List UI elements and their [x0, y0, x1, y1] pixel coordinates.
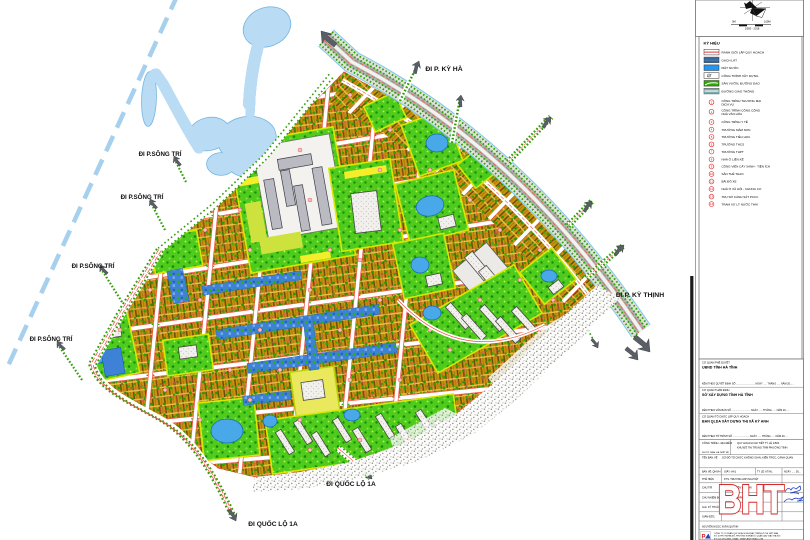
svg-text:TRƯỜNG THPT: TRƯỜNG THPT — [722, 149, 744, 154]
svg-text:CÔNG TRÌNH Y TẾ: CÔNG TRÌNH Y TẾ — [722, 119, 748, 124]
svg-text:KÈM THEO QUYẾT ĐỊNH SỐ .......: KÈM THEO QUYẾT ĐỊNH SỐ .................… — [702, 383, 794, 386]
svg-text:GIẤY: HA1: GIẤY: HA1 — [724, 470, 737, 473]
svg-text:NGUYỄN NGỌC XUÂN QUỲNH: NGUYỄN NGỌC XUÂN QUỲNH — [702, 526, 738, 529]
svg-text:CÔNG VIÊN CÂY XANH - TIỆN ÍCH: CÔNG VIÊN CÂY XANH - TIỆN ÍCH — [722, 164, 770, 169]
svg-text:KÝ HIỆU: KÝ HIỆU — [704, 41, 720, 46]
svg-text:ĐI P. KỲ HÀ: ĐI P. KỲ HÀ — [425, 64, 462, 73]
svg-text:CÔNG TRÌNH XÂY DỰNG: CÔNG TRÌNH XÂY DỰNG — [722, 73, 760, 78]
svg-text:NGƯỜI THAM GIA THIẾT KẾ:: NGƯỜI THAM GIA THIẾT KẾ: — [702, 451, 730, 454]
svg-text:SỞ XÂY DỰNG TỈNH HÀ TĨNH: SỞ XÂY DỰNG TỈNH HÀ TĨNH — [702, 392, 753, 397]
svg-text:NGÀY ..... 05...: NGÀY ..... 05... — [784, 470, 801, 473]
svg-text:NHÀ Ở LIÊN KẾ: NHÀ Ở LIÊN KẾ — [722, 157, 744, 162]
svg-text:SÂN THỂ THAO: SÂN THỂ THAO — [722, 171, 745, 176]
svg-text:KÈM THEO TỜ TRÌNH SỐ .........: KÈM THEO TỜ TRÌNH SỐ ...................… — [702, 435, 788, 438]
svg-text:TRƯỜNG TIỂU HỌC: TRƯỜNG TIỂU HỌC — [722, 134, 752, 139]
svg-text:TRỤ SỞ CẢNH SÁT PCCC: TRỤ SỞ CẢNH SÁT PCCC — [722, 194, 760, 199]
svg-text:14: 14 — [710, 202, 714, 206]
svg-text:NHÀ VĂN HÓA: NHÀ VĂN HÓA — [722, 111, 743, 116]
svg-text:1/500 - 2018: 1/500 - 2018 — [745, 27, 760, 31]
svg-text:11: 11 — [710, 180, 713, 184]
svg-text:ĐƯỜNG GIAO THÔNG: ĐƯỜNG GIAO THÔNG — [722, 89, 755, 94]
svg-text:RANH GIỚI LẬP QUY HOẠCH: RANH GIỚI LẬP QUY HOẠCH — [722, 50, 765, 55]
svg-text:CHỦ TRÌ: CHỦ TRÌ — [702, 487, 712, 490]
svg-text:ĐI P.SÔNG TRÍ: ĐI P.SÔNG TRÍ — [72, 262, 115, 270]
svg-text:ĐI P. KỲ THỊNH: ĐI P. KỲ THỊNH — [616, 290, 664, 299]
svg-text:12: 12 — [710, 187, 714, 191]
svg-text:MẶT NƯỚC: MẶT NƯỚC — [722, 65, 740, 70]
svg-text:BHT: BHT — [718, 478, 784, 522]
svg-text:GIÁM ĐỐC: GIÁM ĐỐC — [702, 515, 715, 518]
svg-text:100M: 100M — [764, 20, 771, 24]
svg-text:13: 13 — [710, 195, 714, 199]
svg-text:BAN QLDA XÂY DỰNG THỊ XÃ KỲ AN: BAN QLDA XÂY DỰNG THỊ XÃ KỲ ANH — [702, 418, 769, 423]
svg-text:BÃI ĐỖ XE: BÃI ĐỖ XE — [722, 179, 737, 184]
svg-text:P: P — [702, 535, 706, 540]
svg-text:THỂ HIỆN: THỂ HIỆN — [702, 478, 714, 481]
svg-text:TỶ LỆ: KT/HL: TỶ LỆ: KT/HL — [757, 470, 773, 473]
svg-text:NHÀ Ở XÃ HỘI - CHUNG CƯ: NHÀ Ở XÃ HỘI - CHUNG CƯ — [722, 186, 762, 191]
svg-text:ĐI P.SÔNG TRÍ: ĐI P.SÔNG TRÍ — [121, 193, 164, 201]
svg-text:SÂN VƯỜN, ĐƯỜNG DẠO: SÂN VƯỜN, ĐƯỜNG DẠO — [722, 81, 761, 86]
svg-text:UBND TỈNH HÀ TĨNH: UBND TỈNH HÀ TĨNH — [702, 364, 738, 369]
svg-text:ĐI P.SÔNG TRÍ: ĐI P.SÔNG TRÍ — [30, 335, 73, 343]
svg-text:CÔNG TY CỔ PHẦN QUY HOẠCH VÀ P: CÔNG TY CỔ PHẦN QUY HOẠCH VÀ PHÁT TRIỂN … — [714, 532, 779, 535]
svg-text:SỐ 10 PHỐ NGHĨA ĐÔ, PHƯỜNG NGH: SỐ 10 PHỐ NGHĨA ĐÔ, PHƯỜNG NGHĨA ĐÔ, QUẬ… — [714, 535, 781, 538]
svg-text:KÈM THEO VĂN BẢN SỐ ..........: KÈM THEO VĂN BẢN SỐ ....................… — [702, 409, 789, 412]
svg-text:TRẠM XỬ LÝ NƯỚC THẢI: TRẠM XỬ LÝ NƯỚC THẢI — [722, 201, 758, 206]
svg-text:TRƯỜNG THCS: TRƯỜNG THCS — [722, 142, 745, 147]
svg-text:TRƯỜNG MẦM NON: TRƯỜNG MẦM NON — [722, 127, 751, 132]
svg-text:10: 10 — [710, 172, 714, 176]
svg-text:GẠCH LÁT: GẠCH LÁT — [722, 58, 738, 62]
svg-text:BẢN VẼ: QH/VH: BẢN VẼ: QH/VH — [702, 470, 721, 473]
svg-text:DỊCH VỤ: DỊCH VỤ — [722, 103, 734, 107]
svg-text:ĐI P.SÔNG TRÍ: ĐI P.SÔNG TRÍ — [139, 150, 182, 158]
svg-text:0M: 0M — [732, 20, 736, 24]
